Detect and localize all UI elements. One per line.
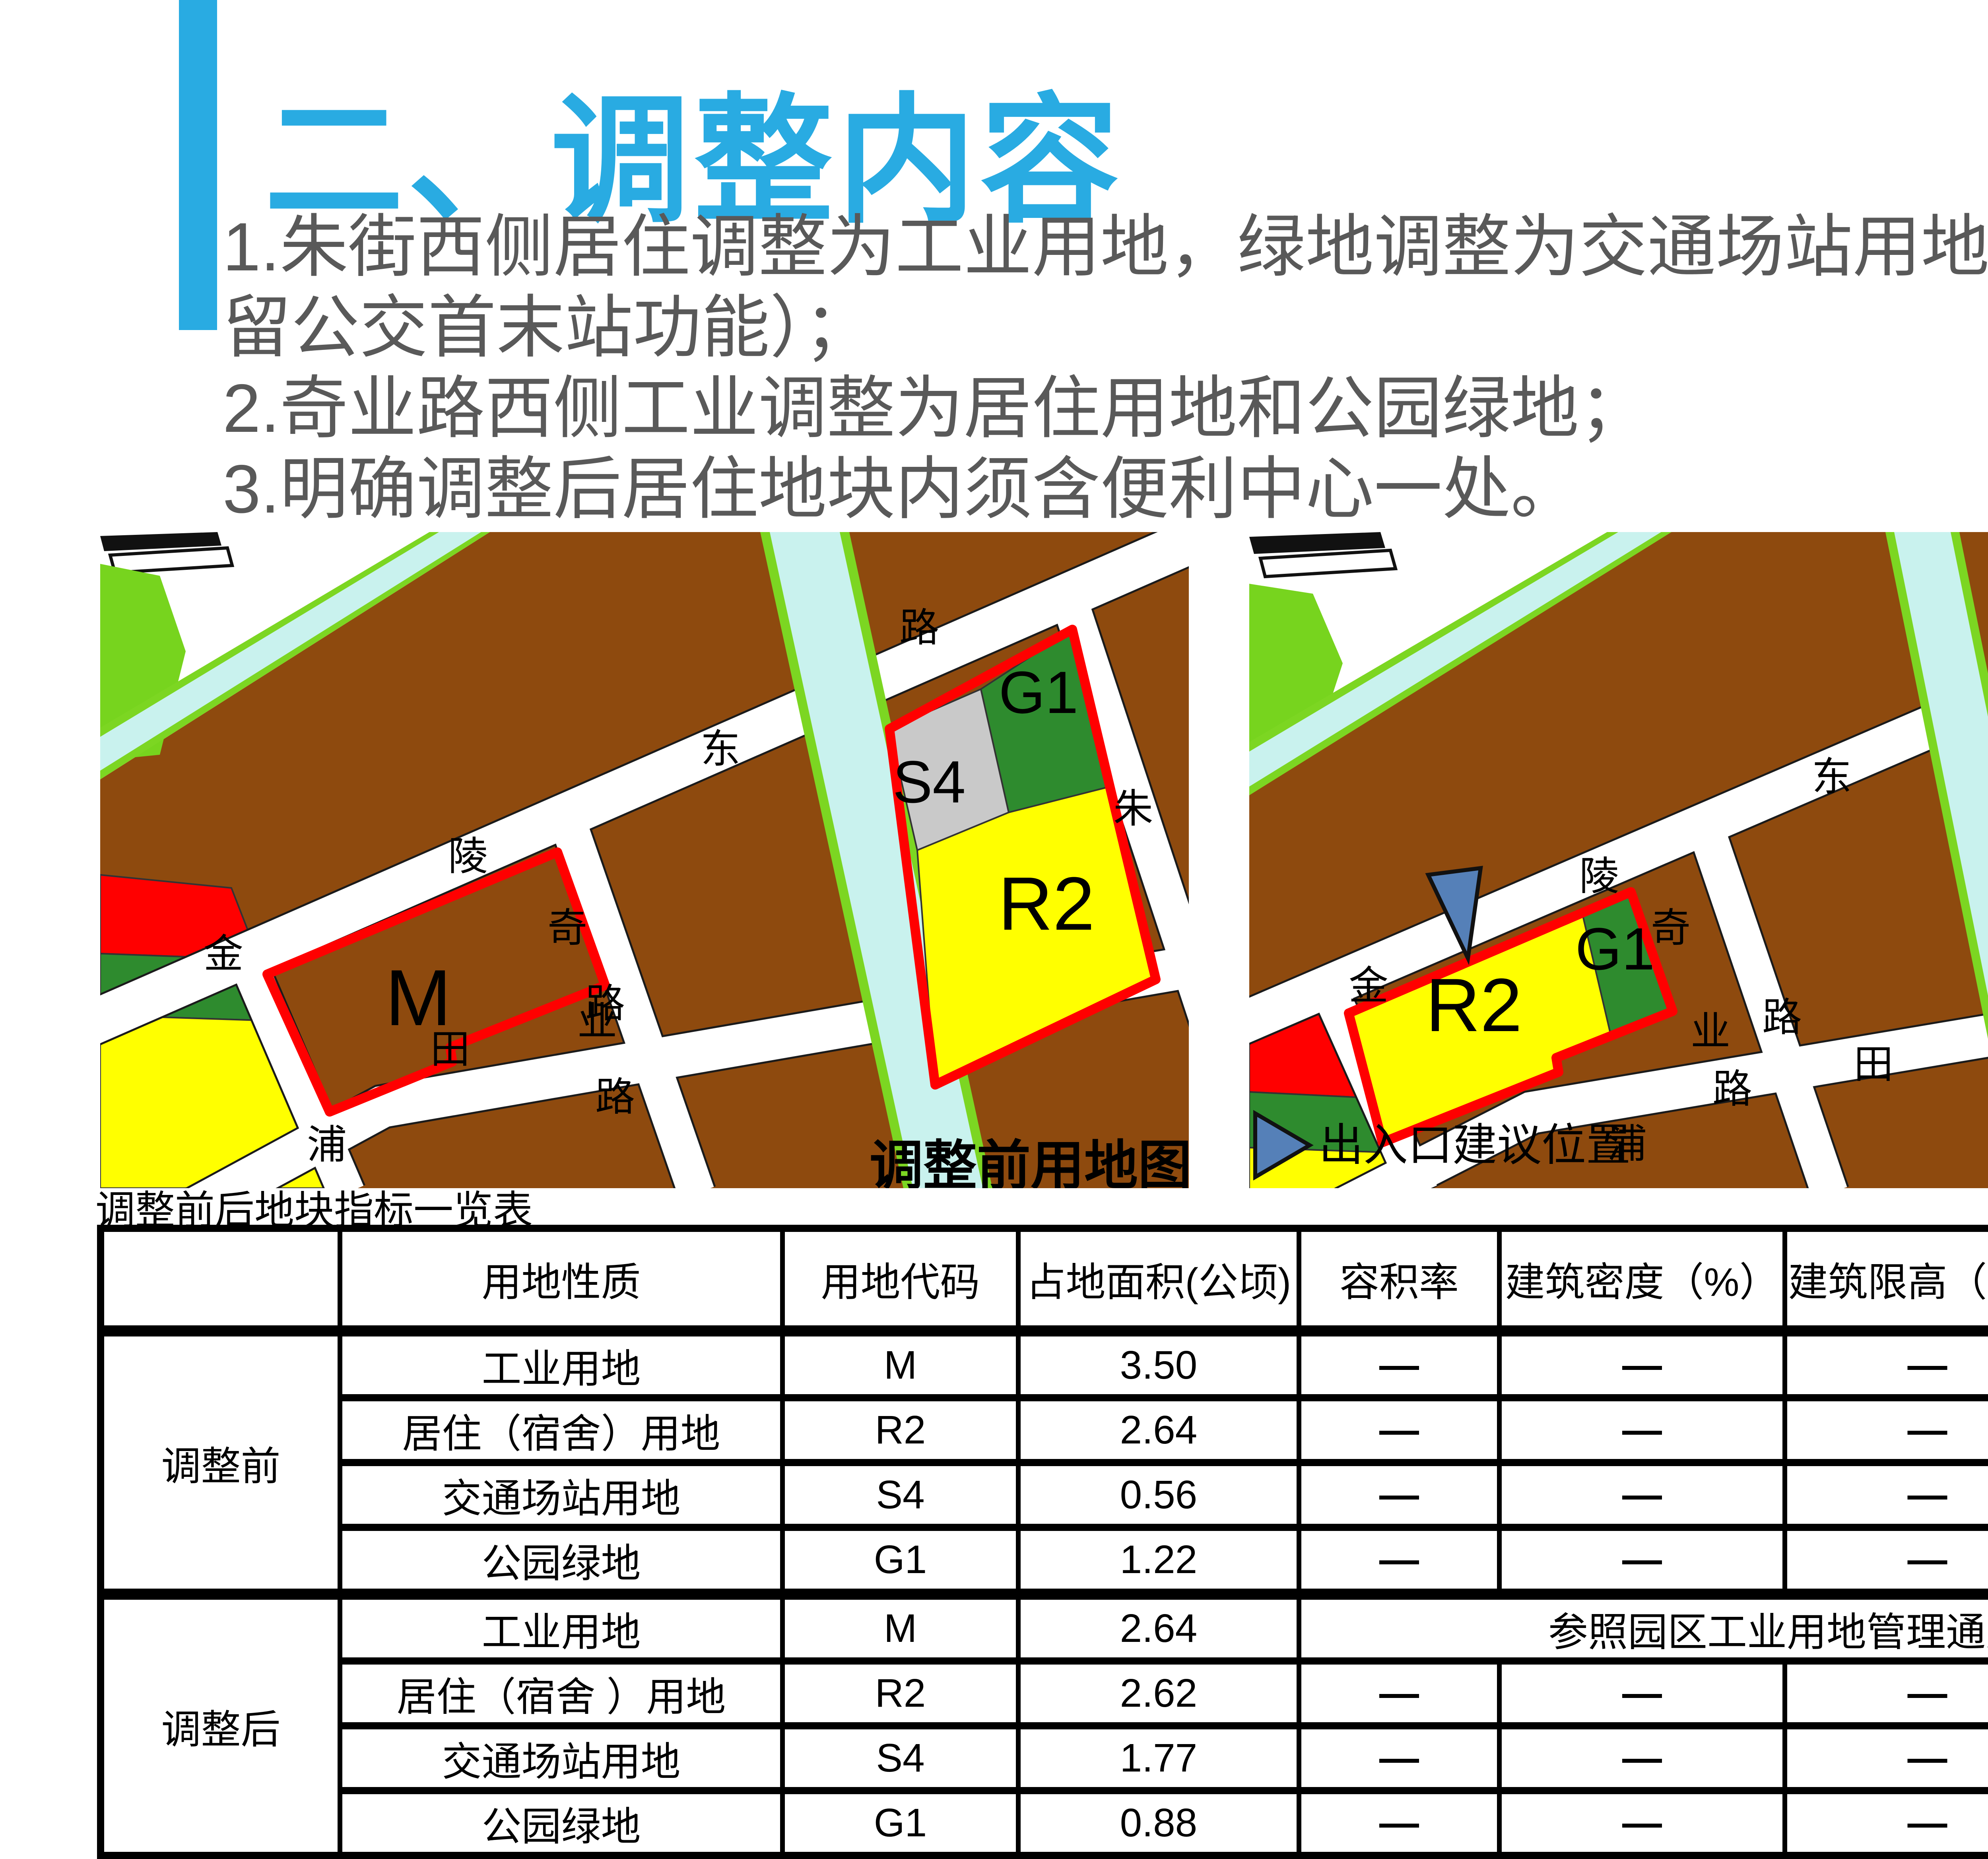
header-blank — [101, 1228, 340, 1331]
table-row: 居住（宿舍）用地 R2 2.64 — — — — — [101, 1398, 1988, 1463]
road-label-tian: 田 — [1854, 1042, 1893, 1087]
note-line-3: 2.奇业路西侧工业调整为居住用地和公园绿地； — [223, 368, 1988, 449]
cell-code: S4 — [782, 1463, 1018, 1527]
cell-dash: — — [1499, 1726, 1785, 1791]
cell-code: R2 — [782, 1661, 1018, 1726]
cell-nature: 交通场站用地 — [340, 1463, 782, 1527]
cell-dash: — — [1499, 1331, 1785, 1398]
table-row: 公园绿地 G1 1.22 — — — — — [101, 1527, 1988, 1594]
cell-nature: 公园绿地 — [340, 1791, 782, 1855]
table-row: 调整前 工业用地 M 3.50 — — — — — [101, 1331, 1988, 1398]
cell-area: 2.64 — [1018, 1594, 1299, 1661]
cell-nature: 居住（宿舍）用地 — [340, 1398, 782, 1463]
road-label-ling: 陵 — [1579, 854, 1619, 899]
cell-code: S4 — [782, 1726, 1018, 1791]
legend-entrance-label: 出入口建议位置 — [1319, 1120, 1631, 1170]
cell-dash: — — [1299, 1331, 1499, 1398]
road-label-dong: 东 — [1812, 755, 1852, 799]
cell-dash: — — [1785, 1791, 1988, 1855]
cell-area: 1.22 — [1018, 1527, 1299, 1594]
cell-nature: 工业用地 — [340, 1331, 782, 1398]
parcel-label-g1: G1 — [999, 659, 1078, 726]
header-density: 建筑密度（%） — [1499, 1228, 1785, 1331]
cell-area: 0.56 — [1018, 1463, 1299, 1527]
cell-dash: — — [1785, 1661, 1988, 1726]
road-label-zhu: 朱 — [1113, 787, 1153, 831]
map-after-adjustment: B 金 陵 东 路 奇 业 路 朱 街 浦 田 路 R2 G1 S4 M 出入口… — [1249, 532, 1988, 1188]
map-before-canvas: 金 陵 东 路 奇 业 路 朱 街 浦 田 路 M S4 G1 R2 调整前用地… — [100, 532, 1189, 1188]
cell-code: M — [782, 1331, 1018, 1398]
cell-dash: — — [1299, 1527, 1499, 1594]
road-label-qi: 奇 — [1651, 906, 1691, 950]
cell-nature: 工业用地 — [340, 1594, 782, 1661]
cell-nature: 居住（宿舍 ）用地 — [340, 1661, 782, 1726]
note-line-1: 1.朱街西侧居住调整为工业用地，绿地调整为交通场站用地（保 — [223, 207, 1988, 287]
header-land-nature: 用地性质 — [340, 1228, 782, 1331]
table-row: 调整后 工业用地 M 2.64 参照园区工业用地管理通则控制 — [101, 1594, 1988, 1661]
note-line-2: 留公交首末站功能）； — [223, 287, 1988, 368]
road-label-qi: 奇 — [547, 906, 587, 950]
cell-area: 1.77 — [1018, 1726, 1299, 1791]
cell-dash: — — [1499, 1527, 1785, 1594]
road-label-dong: 东 — [701, 727, 740, 771]
table-header-row: 用地性质 用地代码 占地面积(公顷) 容积率 建筑密度（%） 建筑限高（米） 绿… — [101, 1228, 1988, 1331]
cell-dash: — — [1785, 1527, 1988, 1594]
parcel-label-s4: S4 — [893, 748, 965, 815]
cell-dash: — — [1499, 1661, 1785, 1726]
header-height-limit: 建筑限高（米） — [1785, 1228, 1988, 1331]
cell-dash: — — [1299, 1726, 1499, 1791]
cell-area: 0.88 — [1018, 1791, 1299, 1855]
cell-code: G1 — [782, 1791, 1018, 1855]
road-label-lu: 路 — [585, 981, 625, 1026]
cell-dash: — — [1299, 1463, 1499, 1527]
cell-dash: — — [1499, 1398, 1785, 1463]
cell-nature: 公园绿地 — [340, 1527, 782, 1594]
indicator-table: 用地性质 用地代码 占地面积(公顷) 容积率 建筑密度（%） 建筑限高（米） 绿… — [97, 1225, 1988, 1859]
cell-dash: — — [1299, 1791, 1499, 1855]
cell-regulation-note: 参照园区工业用地管理通则控制 — [1299, 1594, 1988, 1661]
table-row: 居住（宿舍 ）用地 R2 2.62 — — — — — [101, 1661, 1988, 1726]
header-far: 容积率 — [1299, 1228, 1499, 1331]
group-label-after: 调整后 — [101, 1594, 340, 1855]
cell-dash: — — [1499, 1791, 1785, 1855]
group-label-before: 调整前 — [101, 1331, 340, 1594]
title-accent-bar — [179, 0, 217, 330]
cell-area: 2.64 — [1018, 1398, 1299, 1463]
cell-area: 2.62 — [1018, 1661, 1299, 1726]
table-row: 交通场站用地 S4 0.56 — — — — — [101, 1463, 1988, 1527]
cell-dash: — — [1785, 1463, 1988, 1527]
map-caption-before: 调整前用地图 — [870, 1136, 1189, 1188]
cell-code: M — [782, 1594, 1018, 1661]
cell-dash: — — [1785, 1726, 1988, 1791]
cell-dash: — — [1299, 1661, 1499, 1726]
map-before-adjustment: 金 陵 东 路 奇 业 路 朱 街 浦 田 路 M S4 G1 R2 调整前用地… — [100, 532, 1189, 1188]
road-label-lu: 路 — [595, 1075, 635, 1119]
parcel-label-r2: R2 — [1426, 963, 1522, 1047]
cell-area: 3.50 — [1018, 1331, 1299, 1398]
parcel-label-g1: G1 — [1575, 915, 1655, 982]
cell-dash: — — [1499, 1463, 1785, 1527]
cell-code: R2 — [782, 1398, 1018, 1463]
cell-dash: — — [1299, 1398, 1499, 1463]
parcel-label-m: M — [385, 954, 452, 1042]
road-label-jin: 金 — [1349, 963, 1388, 1008]
road-label-ye: 业 — [1691, 1009, 1730, 1054]
road-label-jin: 金 — [204, 932, 243, 976]
note-line-4: 3.明确调整后居住地块内须含便利中心一处。 — [223, 449, 1988, 530]
table-row: 公园绿地 G1 0.88 — — — — — [101, 1791, 1988, 1855]
road-label-lu: 路 — [1762, 995, 1802, 1040]
map-after-canvas: B 金 陵 东 路 奇 业 路 朱 街 浦 田 路 R2 G1 S4 M 出入口… — [1249, 532, 1988, 1188]
cell-code: G1 — [782, 1527, 1018, 1594]
road-label-lu: 路 — [899, 606, 939, 650]
table-row: 交通场站用地 S4 1.77 — — — — — [101, 1726, 1988, 1791]
cell-dash: — — [1785, 1398, 1988, 1463]
parcel-label-r2: R2 — [998, 862, 1095, 946]
cell-dash: — — [1785, 1331, 1988, 1398]
road-label-ling: 陵 — [448, 834, 488, 879]
header-area: 占地面积(公顷) — [1018, 1228, 1299, 1331]
cell-nature: 交通场站用地 — [340, 1726, 782, 1791]
header-land-code: 用地代码 — [782, 1228, 1018, 1331]
road-label-lu: 路 — [1712, 1067, 1752, 1111]
adjustment-notes: 1.朱街西侧居住调整为工业用地，绿地调整为交通场站用地（保 留公交首末站功能）；… — [223, 207, 1988, 530]
road-label-pu: 浦 — [307, 1123, 347, 1167]
